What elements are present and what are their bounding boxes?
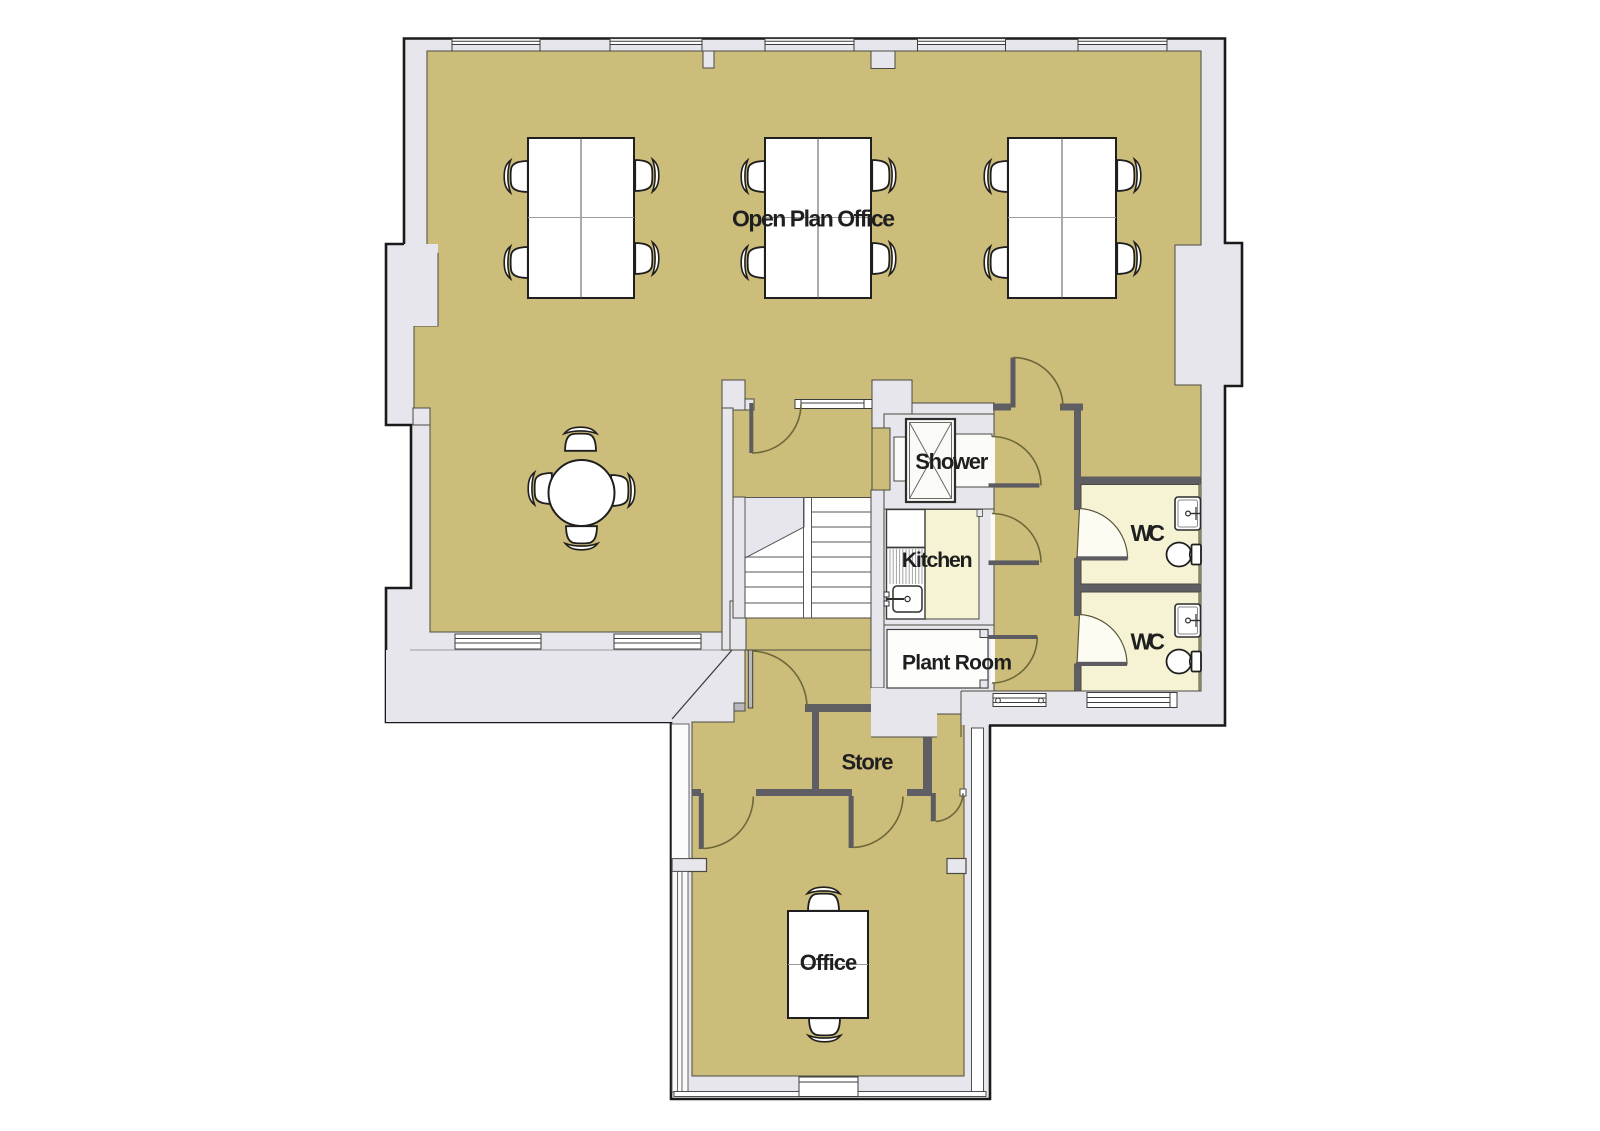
svg-text:WC: WC (1130, 629, 1165, 655)
svg-text:Office: Office (800, 950, 858, 975)
svg-text:WC: WC (1130, 520, 1165, 546)
svg-text:Plant Room: Plant Room (902, 652, 1012, 675)
svg-text:Store: Store (842, 750, 894, 775)
svg-text:Shower: Shower (915, 449, 988, 474)
svg-text:Open Plan Office: Open Plan Office (732, 206, 895, 232)
svg-text:Kitchen: Kitchen (902, 548, 973, 572)
